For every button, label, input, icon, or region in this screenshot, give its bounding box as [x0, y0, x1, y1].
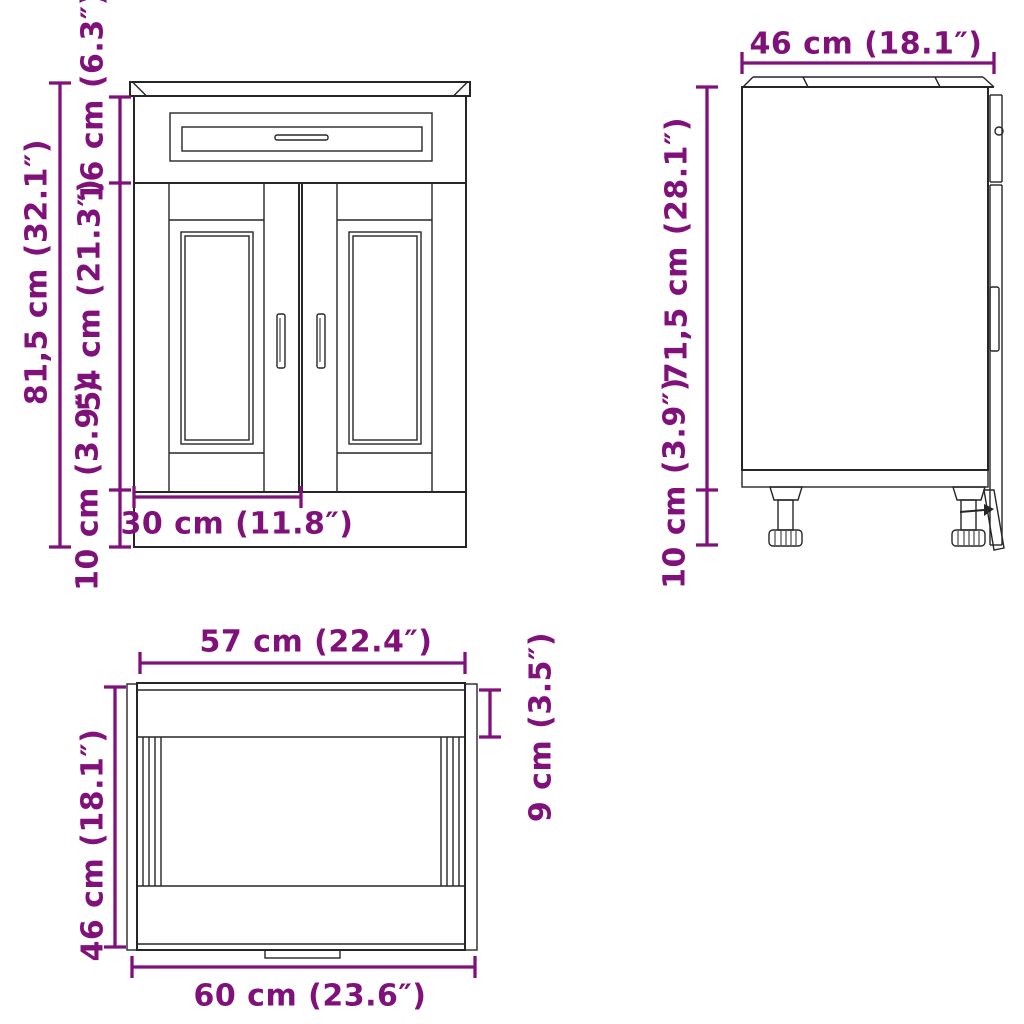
side-view-drawing [742, 77, 1004, 550]
side-door-handle-edge [990, 287, 999, 351]
front-right-door [302, 183, 466, 492]
side-feet-height-label: 10 cm (3.9″) [658, 377, 693, 589]
side-body-panel [742, 87, 988, 470]
side-depth-label: 46 cm (18.1″) [749, 27, 982, 62]
front-top-strip-miter-right [454, 83, 467, 96]
top-carcass-outline [137, 683, 465, 950]
top-inner-width-label: 57 cm (22.4″) [199, 625, 432, 660]
front-view-drawing [130, 82, 470, 547]
side-left-foot [769, 487, 802, 546]
top-total-width-label: 60 cm (23.6″) [193, 979, 426, 1014]
front-total-height-label: 81,5 cm (32.1″) [20, 139, 55, 405]
side-top-face [742, 77, 994, 87]
side-body-height-label: 71,5 cm (28.1″) [660, 117, 695, 383]
front-right-door-frame [337, 183, 432, 492]
top-frame-depth-line [479, 690, 501, 737]
cabinet-dimension-diagram: 81,5 cm (32.1″) 16 cm (6.3″) 54 cm (21.3… [0, 0, 1024, 1024]
top-depth-label: 46 cm (18.1″) [76, 728, 111, 961]
front-door-height-label: 54 cm (21.3″) [73, 178, 108, 411]
side-right-foot [952, 487, 985, 546]
front-top-strip-miter-left [133, 83, 146, 96]
side-heights-line [696, 87, 718, 545]
front-door-width-label: 30 cm (11.8″) [120, 507, 353, 542]
front-drawer-panel [182, 127, 422, 151]
top-view-drawing [127, 683, 477, 958]
front-drawer-front [170, 113, 432, 161]
top-total-width-line [132, 956, 475, 978]
top-right-wall-lines [441, 737, 459, 886]
front-left-door [134, 183, 299, 492]
front-door-width-line [134, 486, 301, 508]
front-drawer-handle [275, 135, 328, 140]
top-left-wall-lines [143, 737, 161, 886]
front-left-door-frame [169, 183, 264, 492]
front-segment-heights-line [109, 97, 131, 547]
side-front-edge-strip [990, 95, 1002, 545]
top-right-side-panel [465, 684, 477, 950]
front-top-strip [130, 82, 470, 96]
front-plinth-height-label: 10 cm (3.9″) [71, 379, 106, 591]
top-left-side-panel [127, 684, 137, 950]
front-drawer-height-label: 16 cm (6.3″) [76, 0, 111, 203]
side-bottom-panel [742, 470, 988, 487]
top-front-tab [265, 950, 340, 958]
top-frame-depth-label: 9 cm (3.5″) [524, 632, 559, 822]
side-dimension-lines [696, 52, 994, 545]
